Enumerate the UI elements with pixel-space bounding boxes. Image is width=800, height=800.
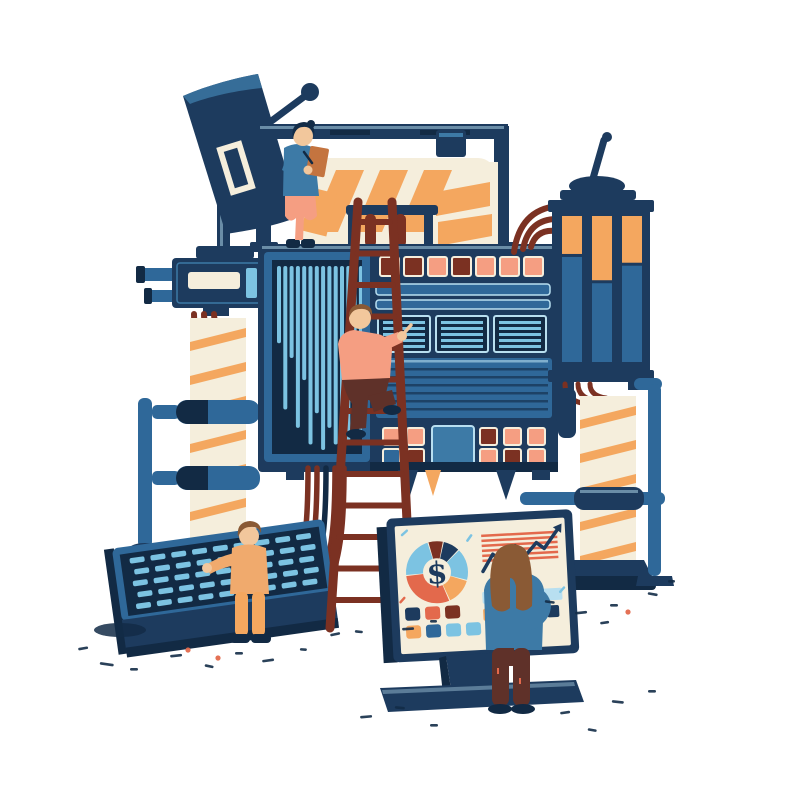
operator-shoe: [230, 634, 250, 643]
climber-shoe: [346, 429, 366, 439]
cabinet-bar: [290, 266, 294, 358]
operator-shoe: [251, 634, 271, 643]
vent-slat: [441, 345, 483, 348]
box-side-slot: [246, 268, 257, 298]
vent-slat: [441, 339, 483, 342]
cabinet-bar: [321, 266, 325, 450]
tower-gauge-fill: [622, 216, 642, 263]
console-shadow: [94, 623, 146, 637]
dollar-label: $: [426, 556, 449, 592]
ground-speck-orange: [625, 609, 630, 614]
groove-line: [380, 368, 548, 371]
operator-torso: [230, 545, 269, 595]
machine-foot-stub: [286, 470, 304, 480]
vent-slat: [441, 321, 483, 324]
ground-speck: [588, 728, 597, 732]
ground-speck: [430, 620, 437, 623]
ground-speck: [560, 711, 570, 715]
groove-line: [380, 384, 548, 387]
cabinet-bar: [315, 266, 319, 413]
column-pipe-stub-1: [152, 405, 180, 419]
machine-button: [404, 257, 423, 276]
ground-speck: [648, 690, 656, 693]
ground-speck: [355, 630, 363, 633]
box-stub-cap-1: [136, 266, 145, 283]
ground-speck: [330, 632, 340, 637]
cable: [590, 384, 606, 398]
machine-button: [524, 257, 543, 276]
vertical-pipe: [648, 384, 661, 576]
inspector-hand: [304, 166, 313, 175]
vertical-pipe: [138, 398, 152, 548]
analyst-hip: [500, 648, 514, 666]
analyst-shoe: [488, 704, 512, 714]
inspector-shoe: [286, 239, 300, 248]
ground-speck: [610, 604, 618, 607]
box-stub-left-1: [140, 268, 176, 281]
vent-slat: [499, 333, 541, 336]
machine-button: [528, 428, 545, 445]
hopper-highlight: [439, 133, 463, 137]
machine-button: [504, 428, 521, 445]
band-stripe: [376, 284, 550, 295]
analyst-leg: [513, 648, 530, 706]
main-machine: [258, 244, 569, 502]
machine-button: [480, 428, 497, 445]
cabinet-bar: [327, 266, 331, 428]
ground-speck: [130, 668, 138, 671]
column-side-pipe: [558, 388, 576, 438]
machine-button: [476, 257, 495, 276]
antenna-knob: [602, 132, 612, 142]
inspector-shoe: [301, 239, 315, 248]
ground-speck: [262, 658, 274, 662]
ground-speck-orange: [185, 647, 190, 652]
ground-speck: [300, 648, 307, 651]
crossing-pipe: [520, 487, 665, 510]
inspector-hair-bun: [307, 120, 315, 128]
vent-slat: [441, 333, 483, 336]
right-tower: [548, 132, 654, 390]
operator-leg: [252, 592, 265, 636]
swatch: [445, 605, 461, 619]
tower-gauge-rest: [562, 257, 582, 362]
ground-speck-orange: [215, 655, 220, 660]
machine-foot-stub: [532, 470, 550, 480]
tower-tubes: [562, 216, 642, 362]
ground-speck: [360, 715, 372, 719]
sleeve-highlight: [580, 490, 638, 493]
ground-speck: [100, 662, 114, 667]
cabinet-bar: [302, 266, 306, 380]
column-sleeve-shadow-2: [176, 466, 208, 490]
cabinet-bar: [334, 266, 338, 444]
swatch: [405, 607, 421, 621]
tower-gauge-rest: [592, 283, 612, 362]
swatch: [426, 624, 442, 638]
vent-slat: [499, 321, 541, 324]
machine-button: [407, 428, 424, 445]
cabinet-bar: [283, 266, 287, 410]
manifold-leg: [424, 210, 433, 247]
dish-feed-knob: [301, 83, 319, 101]
tower-gauge-fill: [562, 216, 582, 254]
ground-speck: [204, 664, 213, 668]
column-pedestal: [564, 560, 652, 576]
swatch: [466, 622, 482, 636]
machine-button: [428, 257, 447, 276]
swatch: [425, 606, 441, 620]
ground-speck: [612, 700, 624, 704]
operator-hand: [202, 563, 212, 573]
operator-leg: [235, 592, 248, 636]
ground-speck: [235, 652, 243, 655]
column-pipe-stub-2: [152, 471, 180, 485]
access-panel: [432, 426, 474, 468]
machine-foot: [496, 470, 516, 500]
ground-speck: [430, 724, 438, 727]
cabinet-bar: [277, 266, 281, 343]
cabinet-bar: [309, 266, 313, 444]
display-panel: $: [376, 509, 579, 663]
machine-funnel: [425, 470, 441, 496]
ground-speck: [600, 621, 609, 625]
dish-pole-foot: [196, 246, 254, 259]
ground-speck: [170, 654, 182, 658]
box-stub-left-2: [148, 290, 176, 302]
climber-shoe: [383, 405, 401, 415]
machine-button: [452, 257, 471, 276]
tower-cap: [560, 190, 636, 200]
groove-line: [380, 376, 548, 379]
band-stripe: [376, 300, 550, 309]
vent-slat: [383, 321, 425, 324]
swatch: [446, 623, 462, 637]
box-display-slot: [188, 272, 240, 289]
ground-speck: [78, 646, 88, 650]
analyst-shoe: [511, 704, 535, 714]
beam-shade: [330, 130, 370, 135]
control-buttons-top: [380, 257, 543, 276]
pipe-right: [634, 378, 674, 586]
column-sleeve-shadow-1: [176, 400, 208, 424]
vent-slat: [383, 327, 425, 330]
ground-speck: [668, 580, 675, 583]
dashboard-display: $: [376, 509, 584, 712]
groove-highlight: [380, 360, 548, 363]
vent-slat: [499, 345, 541, 348]
vent-slat: [499, 339, 541, 342]
vent-slat: [441, 327, 483, 330]
swatch: [406, 625, 422, 639]
ground-speck: [648, 592, 658, 596]
cabinet-bar: [296, 266, 300, 428]
manifold-hose: [365, 214, 376, 247]
tower-antenna: [592, 140, 604, 182]
box-stub-cap-2: [144, 288, 152, 304]
gantry-post-left: [256, 126, 271, 248]
tower-gauge-fill: [592, 216, 612, 280]
scene: $: [0, 0, 800, 800]
control-box: [136, 258, 266, 316]
machine-button: [500, 257, 519, 276]
tower-gauge-rest: [622, 266, 642, 362]
vent-slat: [499, 327, 541, 330]
